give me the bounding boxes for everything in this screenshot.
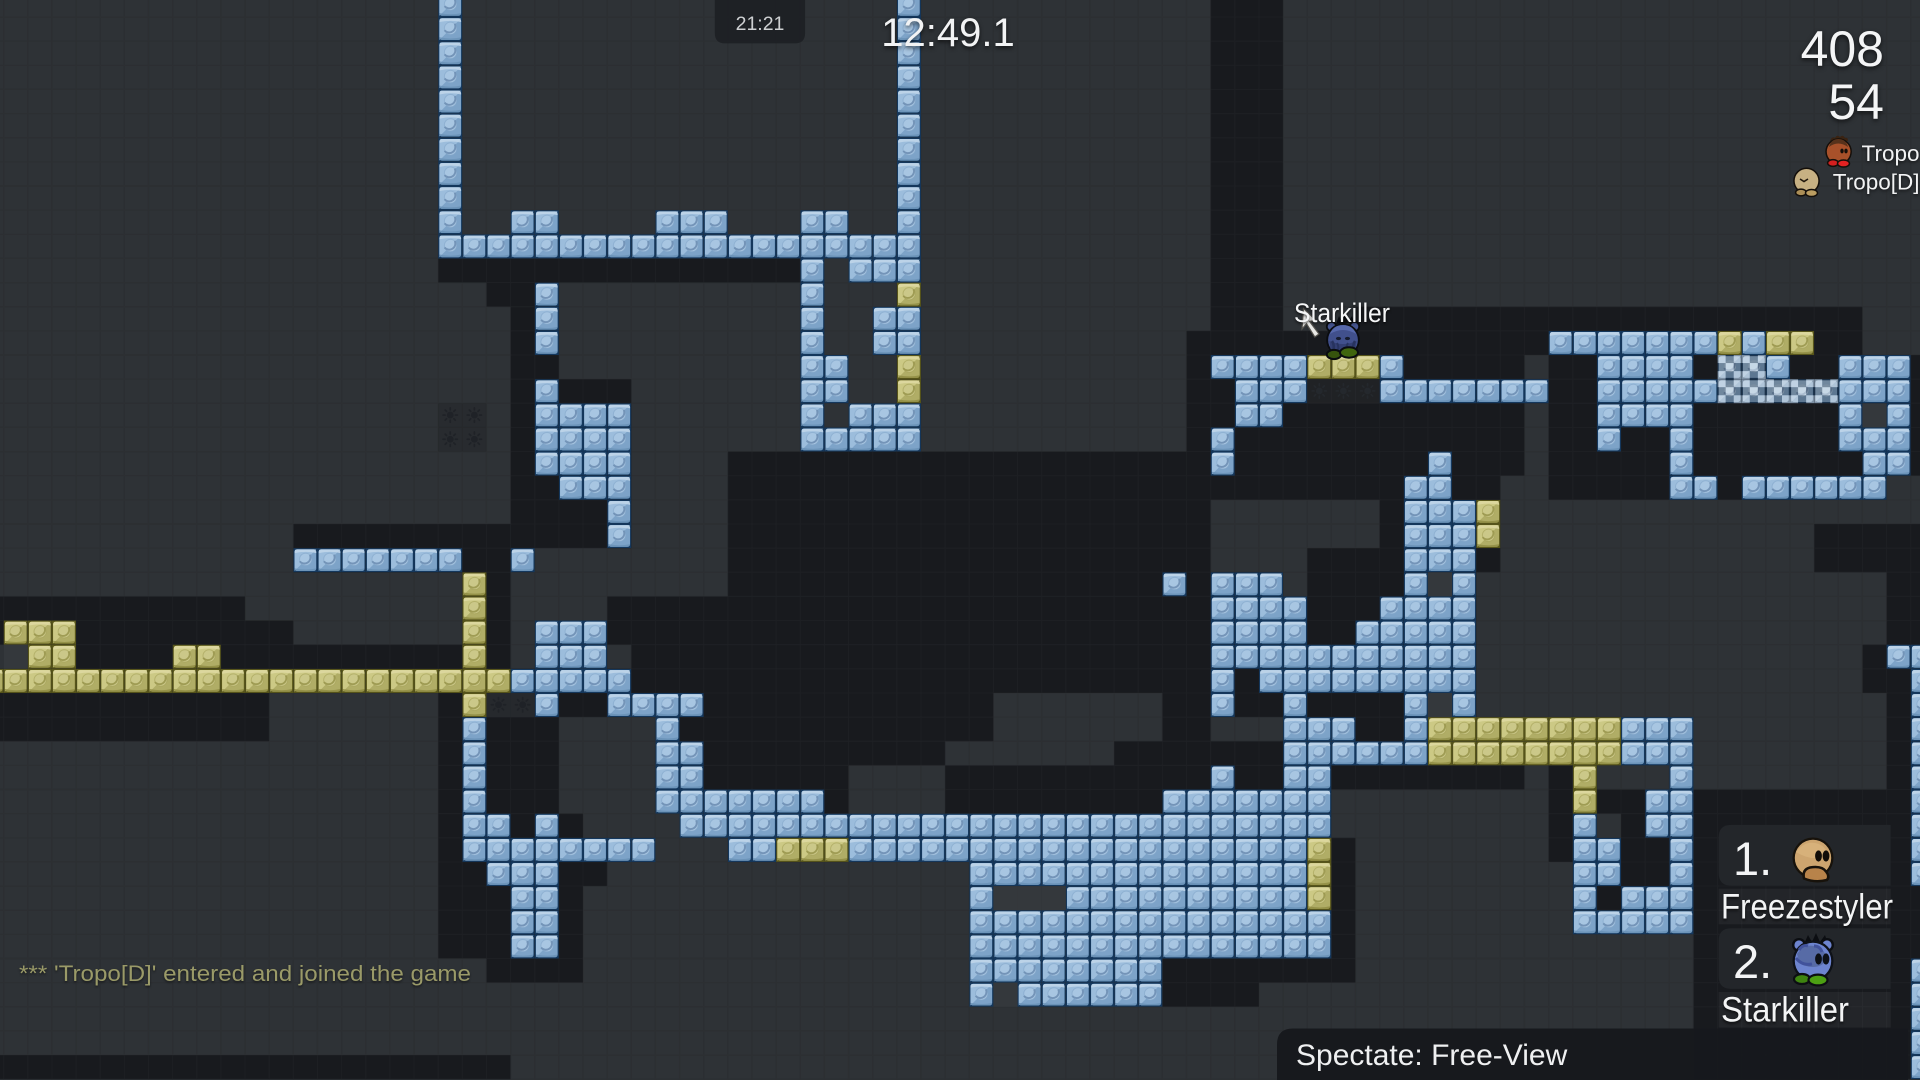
svg-text:21:21: 21:21 xyxy=(736,13,785,35)
svg-text:Tropo[D]: Tropo[D] xyxy=(1833,170,1920,195)
svg-text:1.: 1. xyxy=(1733,832,1772,885)
svg-text:*** 'Tropo[D]' entered and joi: *** 'Tropo[D]' entered and joined the ga… xyxy=(19,961,471,986)
svg-text:12:49.1: 12:49.1 xyxy=(881,11,1014,55)
svg-text:54: 54 xyxy=(1828,74,1884,130)
svg-text:Starkiller: Starkiller xyxy=(1721,991,1849,1030)
svg-text:408: 408 xyxy=(1801,21,1884,77)
svg-text:Tropo: Tropo xyxy=(1862,141,1920,166)
svg-text:2.: 2. xyxy=(1733,935,1772,988)
svg-text:Freezestyler: Freezestyler xyxy=(1721,888,1893,927)
svg-text:Starkiller: Starkiller xyxy=(1294,298,1390,328)
svg-text:Spectate: Free-View: Spectate: Free-View xyxy=(1296,1039,1568,1072)
